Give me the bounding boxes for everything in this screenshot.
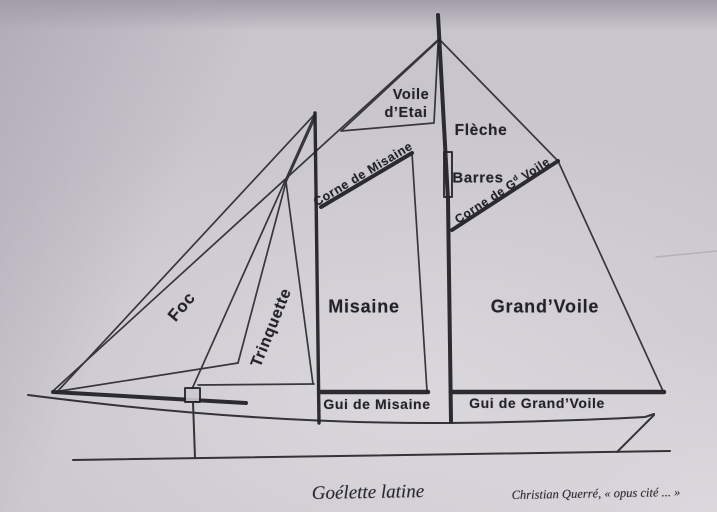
label-gui-de-grand-voile: Gui de Grand’Voile bbox=[469, 395, 605, 411]
credit-text: Christian Querré, « opus cité ... » bbox=[512, 485, 681, 503]
trinquette-halyard-line bbox=[286, 118, 315, 182]
foc-foot-line bbox=[60, 363, 238, 391]
misaine-leech-line bbox=[412, 153, 427, 391]
paper-crease-line bbox=[656, 251, 717, 257]
windlass-post bbox=[193, 402, 195, 458]
scanned-page-photo: Voile d’Etai Flèche Barres Corne de Misa… bbox=[0, 0, 717, 512]
label-voile-etai-line2: d’Etai bbox=[384, 105, 427, 121]
trinquette-leech-line bbox=[286, 182, 313, 384]
windlass-block bbox=[185, 388, 200, 402]
grand-voile-leech-line bbox=[558, 161, 663, 391]
label-fleche: Flèche bbox=[455, 122, 508, 140]
foremast bbox=[315, 113, 319, 423]
foc-luff-line bbox=[56, 114, 315, 393]
label-gui-de-misaine: Gui de Misaine bbox=[323, 396, 430, 412]
label-misaine: Misaine bbox=[328, 297, 400, 318]
diagram-caption: Goélette latine bbox=[312, 481, 425, 505]
foredeck-line bbox=[198, 384, 314, 385]
stern-transom-line bbox=[617, 415, 654, 452]
spars bbox=[53, 15, 664, 423]
waterline bbox=[73, 451, 670, 460]
label-voile-etai-line1: Voile bbox=[393, 87, 430, 103]
label-grand-voile: Grand’Voile bbox=[491, 297, 600, 318]
mainmast bbox=[438, 15, 451, 421]
rigging-and-sail-lines bbox=[53, 39, 663, 393]
mainstay-line bbox=[53, 39, 439, 391]
schooner-line-drawing bbox=[0, 0, 717, 512]
fleche-leech-line bbox=[439, 39, 558, 161]
